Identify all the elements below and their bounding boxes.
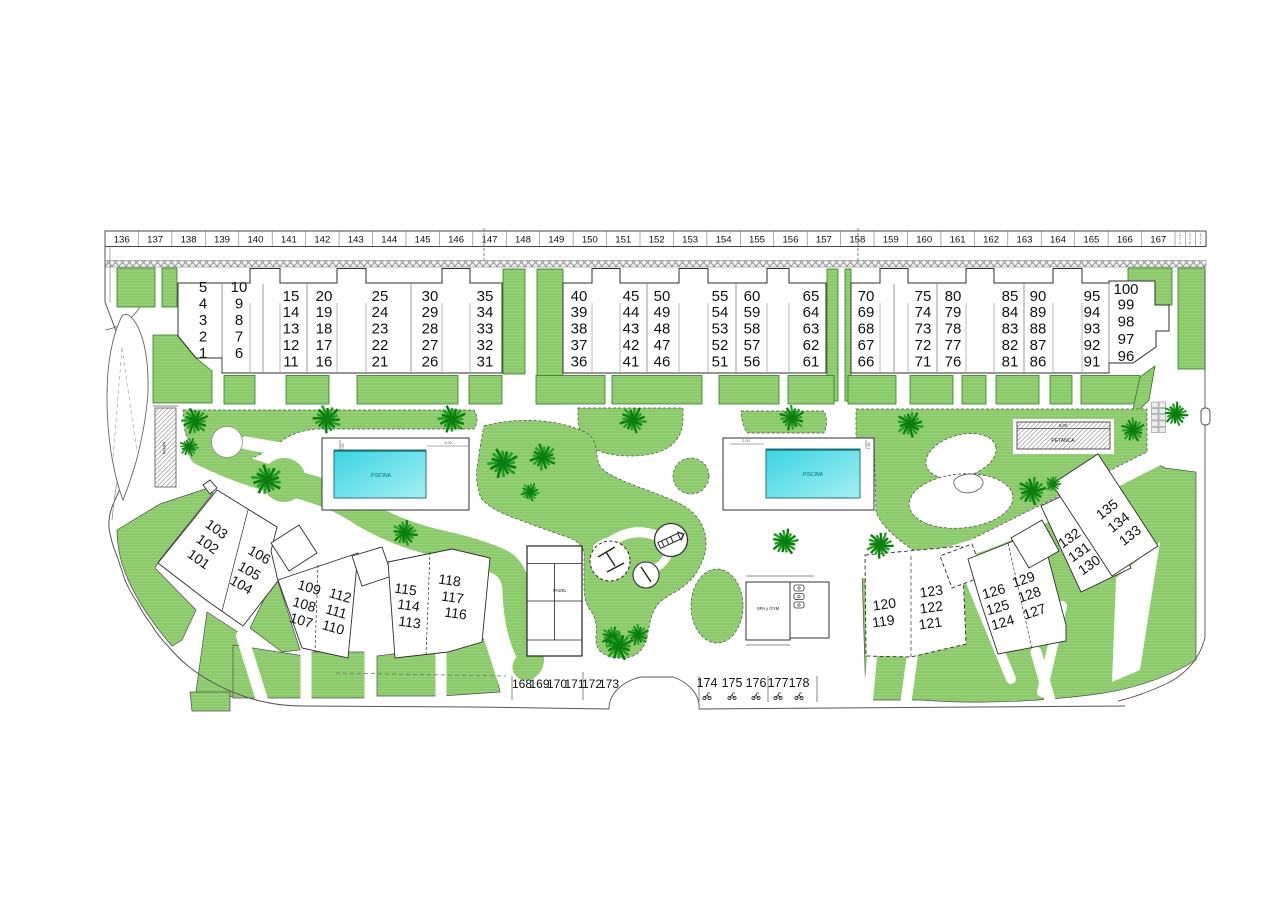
svg-text:158: 158 [849, 235, 865, 246]
svg-text:14: 14 [283, 304, 300, 321]
svg-text:74: 74 [915, 304, 932, 321]
svg-text:3: 3 [199, 312, 207, 329]
svg-text:68: 68 [858, 321, 875, 338]
svg-text:97: 97 [1118, 331, 1135, 348]
svg-text:57: 57 [744, 337, 761, 354]
svg-text:4,00: 4,00 [444, 441, 451, 445]
svg-text:44: 44 [623, 304, 640, 321]
svg-text:100: 100 [1113, 281, 1138, 298]
svg-text:62: 62 [803, 337, 820, 354]
svg-text:25: 25 [372, 288, 389, 305]
svg-text:138: 138 [181, 235, 197, 246]
svg-text:8: 8 [235, 312, 243, 329]
svg-text:6: 6 [235, 345, 243, 362]
svg-text:SPA y GYM: SPA y GYM [757, 606, 780, 611]
svg-text:17: 17 [316, 337, 333, 354]
svg-text:24: 24 [372, 304, 389, 321]
svg-text:146: 146 [448, 235, 464, 246]
svg-text:4: 4 [199, 296, 207, 313]
svg-text:90: 90 [1030, 288, 1047, 305]
svg-text:54: 54 [712, 304, 729, 321]
svg-text:174: 174 [697, 676, 718, 690]
svg-text:46: 46 [654, 354, 671, 371]
svg-text:47: 47 [654, 337, 671, 354]
svg-text:152: 152 [649, 235, 665, 246]
svg-text:137: 137 [147, 235, 163, 246]
svg-text:18: 18 [316, 321, 333, 338]
svg-text:72: 72 [915, 337, 932, 354]
svg-text:2: 2 [1189, 241, 1191, 245]
svg-text:45: 45 [623, 288, 640, 305]
svg-text:31: 31 [477, 354, 494, 371]
svg-text:121: 121 [918, 613, 944, 632]
svg-text:2,00: 2,00 [742, 439, 749, 443]
svg-text:95: 95 [1084, 288, 1101, 305]
svg-text:21: 21 [372, 354, 389, 371]
svg-text:82: 82 [1002, 337, 1019, 354]
svg-text:51: 51 [712, 354, 729, 371]
svg-text:150: 150 [582, 235, 598, 246]
svg-text:159: 159 [883, 235, 899, 246]
svg-text:165: 165 [1083, 235, 1099, 246]
svg-text:53: 53 [712, 321, 729, 338]
svg-text:49: 49 [654, 304, 671, 321]
svg-text:34: 34 [477, 304, 494, 321]
svg-text:143: 143 [348, 235, 364, 246]
svg-text:27: 27 [422, 337, 439, 354]
svg-text:63: 63 [803, 321, 820, 338]
svg-text:33: 33 [477, 321, 494, 338]
svg-text:20: 20 [316, 288, 333, 305]
svg-text:177: 177 [768, 676, 789, 690]
svg-text:56: 56 [744, 354, 761, 371]
svg-text:32: 32 [477, 337, 494, 354]
svg-text:12: 12 [283, 337, 300, 354]
svg-text:89: 89 [1030, 304, 1047, 321]
svg-text:64: 64 [803, 304, 820, 321]
svg-text:39: 39 [571, 304, 588, 321]
svg-text:81: 81 [1002, 354, 1019, 371]
svg-text:78: 78 [945, 321, 962, 338]
svg-text:60: 60 [744, 288, 761, 305]
svg-text:120: 120 [872, 594, 898, 613]
svg-text:80: 80 [945, 288, 962, 305]
svg-text:PETANCA: PETANCA [1051, 438, 1075, 444]
svg-text:92: 92 [1084, 337, 1101, 354]
svg-text:178: 178 [789, 676, 810, 690]
svg-text:163: 163 [1017, 235, 1033, 246]
svg-text:37: 37 [571, 337, 588, 354]
svg-text:1: 1 [199, 345, 207, 362]
svg-text:151: 151 [615, 235, 631, 246]
svg-text:144: 144 [381, 235, 398, 246]
svg-text:160: 160 [916, 235, 932, 246]
svg-text:71: 71 [915, 354, 932, 371]
svg-text:36: 36 [571, 354, 588, 371]
svg-text:55: 55 [712, 288, 729, 305]
svg-text:86: 86 [1030, 354, 1047, 371]
svg-text:13: 13 [283, 321, 300, 338]
svg-text:75: 75 [915, 288, 932, 305]
svg-text:84: 84 [1002, 304, 1019, 321]
svg-text:166: 166 [1117, 235, 1133, 246]
svg-text:52: 52 [712, 337, 729, 354]
svg-text:PISCINA: PISCINA [803, 472, 824, 478]
svg-text:66: 66 [858, 354, 875, 371]
svg-text:61: 61 [803, 354, 820, 371]
svg-text:PADEL: PADEL [553, 588, 567, 593]
svg-text:96: 96 [1118, 348, 1135, 365]
svg-text:67: 67 [858, 337, 875, 354]
svg-text:157: 157 [816, 235, 832, 246]
svg-text:116: 116 [444, 604, 469, 623]
svg-text:142: 142 [314, 235, 330, 246]
svg-text:79: 79 [945, 304, 962, 321]
svg-text:140: 140 [247, 235, 263, 246]
svg-text:58: 58 [744, 321, 761, 338]
svg-text:156: 156 [782, 235, 798, 246]
svg-text:2,50: 2,50 [341, 444, 345, 451]
svg-text:15: 15 [283, 288, 300, 305]
svg-text:41: 41 [623, 354, 640, 371]
svg-text:148: 148 [515, 235, 531, 246]
svg-text:10: 10 [231, 279, 248, 296]
svg-text:76: 76 [945, 354, 962, 371]
svg-text:113: 113 [398, 613, 423, 632]
svg-text:154: 154 [716, 235, 733, 246]
svg-text:PISCINA: PISCINA [371, 473, 392, 479]
svg-text:87: 87 [1030, 337, 1047, 354]
svg-text:70: 70 [858, 288, 875, 305]
svg-text:35: 35 [477, 288, 494, 305]
svg-text:118: 118 [438, 571, 463, 590]
svg-text:30: 30 [422, 288, 439, 305]
svg-text:164: 164 [1050, 235, 1067, 246]
svg-text:91: 91 [1084, 354, 1101, 371]
svg-text:1: 1 [1179, 241, 1181, 245]
svg-text:42: 42 [623, 337, 640, 354]
svg-text:29: 29 [422, 304, 439, 321]
svg-text:RAMPA: RAMPA [163, 441, 167, 454]
svg-text:26: 26 [422, 354, 439, 371]
svg-text:94: 94 [1084, 304, 1101, 321]
svg-text:99: 99 [1118, 297, 1135, 314]
svg-text:153: 153 [682, 235, 698, 246]
svg-text:173: 173 [599, 677, 619, 691]
svg-text:85: 85 [1002, 288, 1019, 305]
svg-text:4,50: 4,50 [867, 443, 871, 450]
svg-text:11: 11 [283, 354, 299, 371]
svg-text:38: 38 [571, 321, 588, 338]
svg-text:93: 93 [1084, 321, 1101, 338]
svg-text:43: 43 [623, 321, 640, 338]
svg-text:139: 139 [214, 235, 230, 246]
svg-text:141: 141 [281, 235, 297, 246]
svg-text:28: 28 [422, 321, 439, 338]
svg-text:19: 19 [316, 304, 333, 321]
svg-text:155: 155 [749, 235, 765, 246]
svg-text:98: 98 [1118, 314, 1135, 331]
svg-text:175: 175 [722, 676, 743, 690]
svg-text:59: 59 [744, 304, 761, 321]
svg-text:50: 50 [654, 288, 671, 305]
svg-text:7: 7 [235, 329, 243, 346]
svg-text:73: 73 [915, 321, 932, 338]
svg-text:136: 136 [114, 235, 130, 246]
svg-text:9: 9 [235, 296, 243, 313]
svg-text:16: 16 [316, 354, 333, 371]
svg-text:162: 162 [983, 235, 999, 246]
svg-text:22: 22 [372, 337, 389, 354]
svg-text:48: 48 [654, 321, 671, 338]
svg-text:69: 69 [858, 304, 875, 321]
svg-text:88: 88 [1030, 321, 1047, 338]
svg-text:23: 23 [372, 321, 389, 338]
svg-text:2: 2 [199, 329, 207, 346]
svg-text:167: 167 [1150, 235, 1166, 246]
svg-text:145: 145 [415, 235, 431, 246]
svg-text:176: 176 [746, 676, 767, 690]
svg-text:83: 83 [1002, 321, 1019, 338]
svg-text:161: 161 [950, 235, 966, 246]
svg-text:5: 5 [199, 279, 207, 296]
svg-text:3: 3 [1200, 241, 1202, 245]
svg-text:149: 149 [548, 235, 564, 246]
svg-text:65: 65 [803, 288, 820, 305]
svg-text:5,00: 5,00 [1059, 423, 1068, 428]
svg-text:77: 77 [945, 337, 962, 354]
svg-text:119: 119 [871, 612, 896, 631]
svg-text:40: 40 [571, 288, 588, 305]
